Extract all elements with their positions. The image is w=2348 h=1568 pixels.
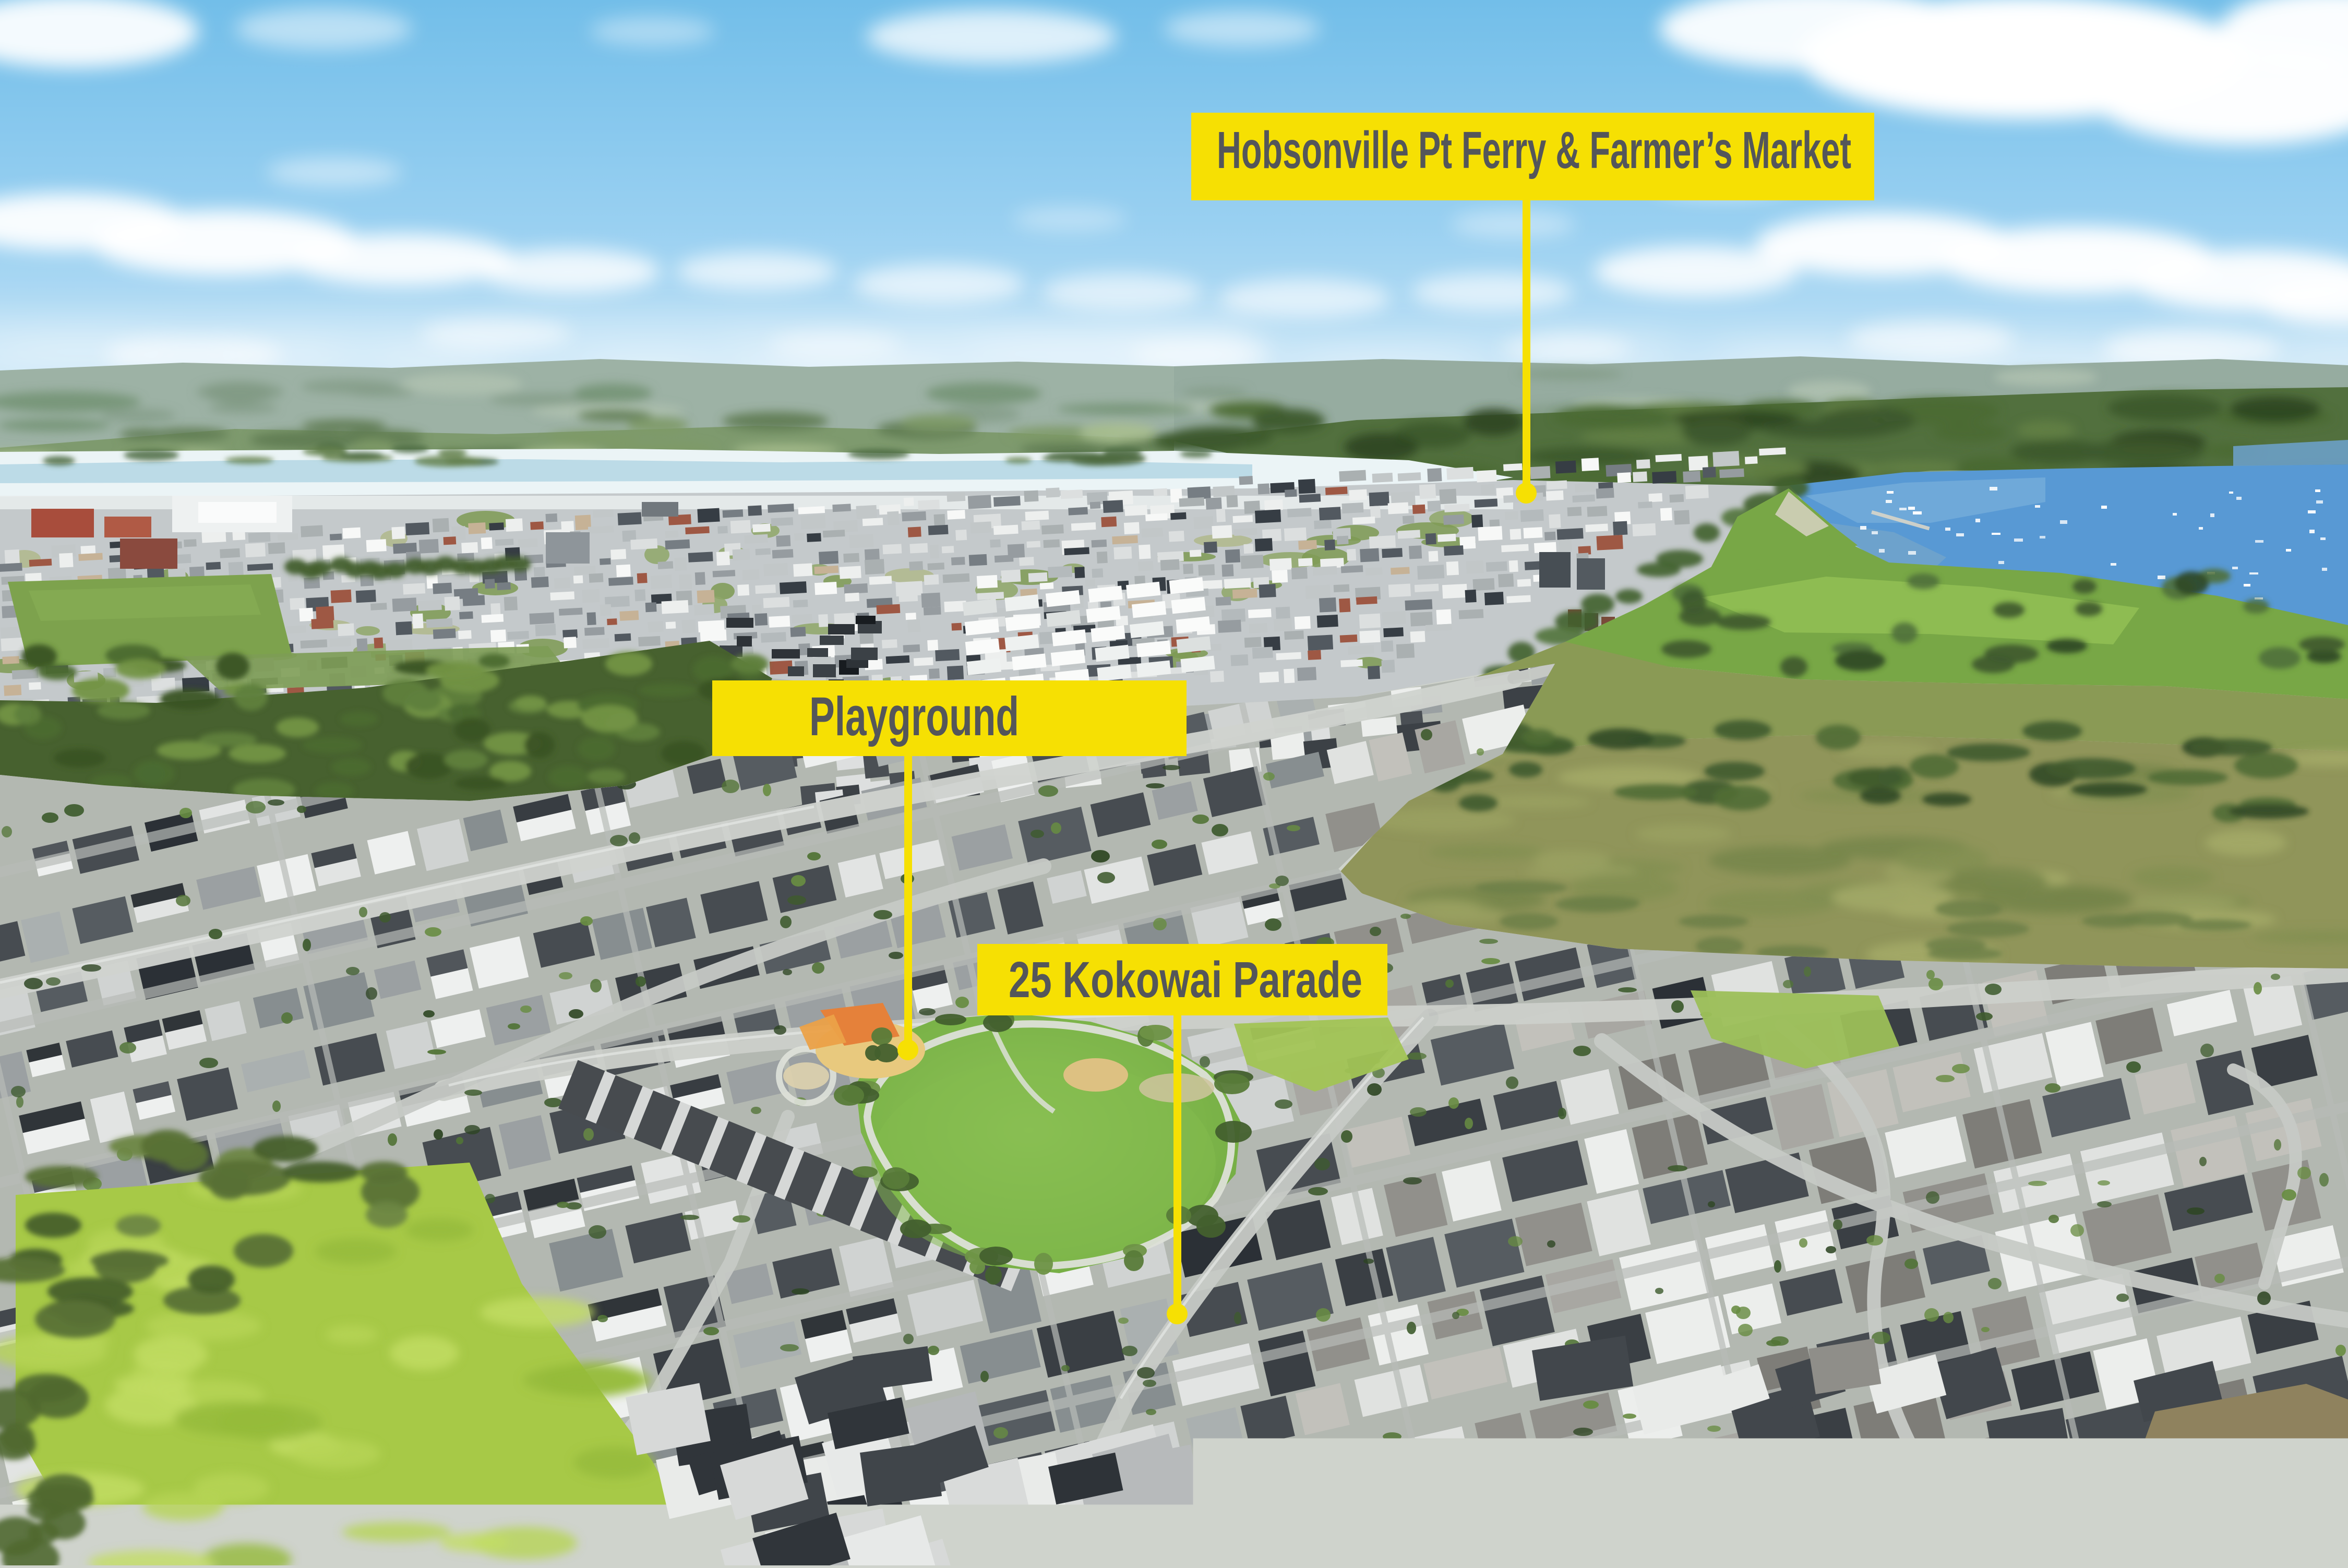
svg-text:Hobsonville Pt Ferry & Farmer’: Hobsonville Pt Ferry & Farmer’s Market xyxy=(1217,121,1851,179)
svg-text:25 Kokowai Parade: 25 Kokowai Parade xyxy=(1009,951,1362,1008)
svg-text:Playground: Playground xyxy=(809,686,1019,747)
